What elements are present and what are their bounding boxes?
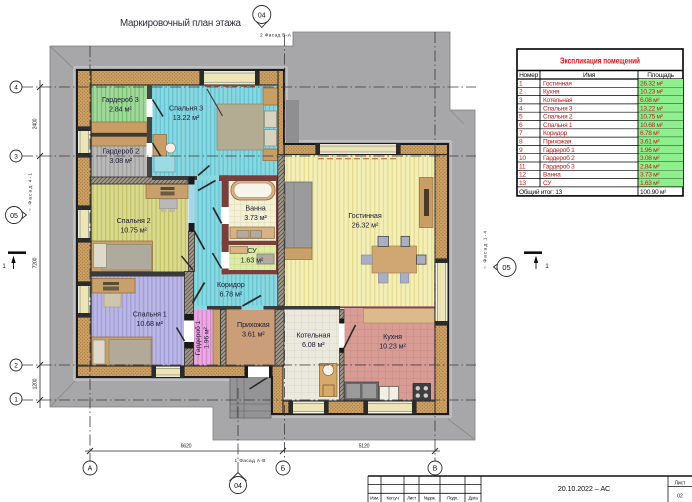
svg-text:6.08 м²: 6.08 м² (640, 97, 660, 104)
svg-text:2400: 2400 (33, 118, 39, 129)
svg-text:Имя: Имя (583, 72, 596, 79)
svg-text:6620: 6620 (181, 444, 192, 450)
svg-text:13.22 м²: 13.22 м² (173, 113, 200, 122)
svg-text:2.84 м²: 2.84 м² (640, 163, 660, 170)
svg-text:№док.: №док. (424, 496, 436, 501)
svg-text:26.32 м²: 26.32 м² (640, 80, 664, 87)
svg-text:Котельная: Котельная (543, 97, 573, 104)
svg-text:Кухня: Кухня (383, 332, 402, 341)
svg-text:Б: Б (281, 466, 286, 473)
svg-text:1.96 м²: 1.96 м² (204, 326, 211, 348)
svg-text:2.84 м²: 2.84 м² (109, 105, 132, 114)
svg-text:7200: 7200 (33, 257, 39, 268)
svg-text:Котельная: Котельная (296, 330, 330, 339)
svg-text:02: 02 (677, 494, 683, 500)
svg-text:1.63 м²: 1.63 м² (241, 256, 264, 265)
svg-text:100.90 м²: 100.90 м² (640, 189, 667, 196)
svg-text:3.73 м²: 3.73 м² (640, 172, 660, 179)
svg-text:Гостинная: Гостинная (348, 211, 381, 220)
svg-text:Общий итог: 13: Общий итог: 13 (519, 188, 563, 196)
svg-text:~ Фасад 1-4: ~ Фасад 1-4 (483, 231, 489, 269)
svg-text:6.78 м²: 6.78 м² (219, 290, 242, 299)
svg-text:Кухня: Кухня (543, 89, 560, 96)
svg-text:1: 1 (2, 264, 6, 270)
svg-text:Коридор: Коридор (543, 130, 568, 137)
svg-text:Спальня 2: Спальня 2 (117, 216, 151, 225)
svg-text:Лист: Лист (675, 481, 687, 487)
svg-text:Площадь: Площадь (647, 72, 674, 79)
svg-text:Спальня 1: Спальня 1 (543, 122, 573, 129)
svg-text:Экспликация помещений: Экспликация помещений (560, 57, 640, 66)
svg-text:1 Фасад А-В: 1 Фасад А-В (235, 458, 266, 464)
svg-text:12: 12 (519, 172, 526, 179)
svg-text:1.63 м²: 1.63 м² (640, 180, 660, 187)
svg-text:3.73 м²: 3.73 м² (244, 213, 267, 222)
svg-text:6.78 м²: 6.78 м² (640, 130, 660, 137)
svg-text:Гардероб 1: Гардероб 1 (543, 146, 575, 154)
svg-text:Кол.уч: Кол.уч (387, 496, 400, 501)
svg-text:3.61 м²: 3.61 м² (640, 139, 660, 146)
svg-text:11: 11 (519, 163, 526, 170)
svg-text:13: 13 (519, 180, 526, 187)
svg-text:Ванна: Ванна (543, 172, 561, 179)
svg-text:10.68 м²: 10.68 м² (640, 122, 664, 129)
svg-text:Гардероб 2: Гардероб 2 (102, 147, 139, 156)
svg-text:Гардероб 2: Гардероб 2 (543, 154, 575, 162)
svg-text:5120: 5120 (359, 444, 370, 450)
svg-text:СУ: СУ (543, 180, 552, 187)
svg-text:Гардероб 1: Гардероб 1 (194, 320, 202, 355)
svg-text:05: 05 (502, 263, 510, 272)
svg-text:Гардероб 3: Гардероб 3 (543, 162, 575, 170)
svg-text:1200: 1200 (33, 378, 39, 389)
svg-text:Спальня 2: Спальня 2 (543, 114, 573, 121)
svg-text:Прихожая: Прихожая (543, 139, 572, 146)
svg-text:2 Фасад В-А: 2 Фасад В-А (260, 33, 292, 39)
svg-text:1: 1 (14, 396, 18, 403)
svg-text:Изм.: Изм. (370, 496, 379, 501)
svg-text:Дата: Дата (469, 496, 479, 501)
svg-text:Спальня 3: Спальня 3 (543, 105, 573, 112)
svg-text:10.68 м²: 10.68 м² (136, 319, 163, 328)
svg-text:Ванна: Ванна (245, 203, 265, 212)
svg-text:6.08 м²: 6.08 м² (302, 340, 325, 349)
svg-text:В: В (433, 466, 438, 473)
svg-text:05: 05 (10, 213, 18, 220)
svg-text:2: 2 (14, 362, 18, 369)
svg-text:Подп.: Подп. (447, 496, 458, 501)
svg-text:Спальня 3: Спальня 3 (169, 104, 203, 113)
svg-text:Маркировочный план этажа: Маркировочный план этажа (120, 18, 242, 29)
svg-text:1: 1 (545, 264, 549, 270)
svg-text:04: 04 (234, 483, 242, 490)
svg-text:10.23 м²: 10.23 м² (379, 342, 406, 351)
svg-text:3.61 м²: 3.61 м² (242, 330, 265, 339)
svg-text:3: 3 (14, 153, 18, 160)
svg-text:Гостинная: Гостинная (543, 80, 572, 87)
svg-text:СУ: СУ (247, 246, 257, 255)
svg-text:Гардероб 3: Гардероб 3 (102, 95, 139, 104)
svg-text:10.75 м²: 10.75 м² (640, 114, 664, 121)
svg-text:20.10.2022 – АС: 20.10.2022 – АС (558, 484, 610, 493)
svg-text:3.08 м²: 3.08 м² (109, 156, 132, 165)
svg-text:10: 10 (519, 155, 526, 162)
svg-text:10.75 м²: 10.75 м² (120, 226, 147, 235)
svg-text:3.08 м²: 3.08 м² (640, 155, 660, 162)
svg-text:Лист: Лист (407, 496, 417, 501)
svg-text:13.22 м²: 13.22 м² (640, 105, 664, 112)
svg-text:10.23 м²: 10.23 м² (640, 89, 664, 96)
svg-text:Номер: Номер (519, 72, 538, 79)
svg-text:~ Фасад 4-1: ~ Фасад 4-1 (28, 173, 34, 211)
svg-text:А: А (88, 466, 93, 473)
svg-text:Спальня 1: Спальня 1 (133, 309, 167, 318)
svg-text:Прихожая: Прихожая (237, 320, 270, 329)
svg-text:4: 4 (14, 84, 18, 91)
svg-text:1.96 м²: 1.96 м² (640, 147, 660, 154)
svg-text:04: 04 (258, 13, 266, 20)
svg-text:26.32 м²: 26.32 м² (352, 221, 379, 230)
svg-text:Коридор: Коридор (217, 280, 245, 289)
